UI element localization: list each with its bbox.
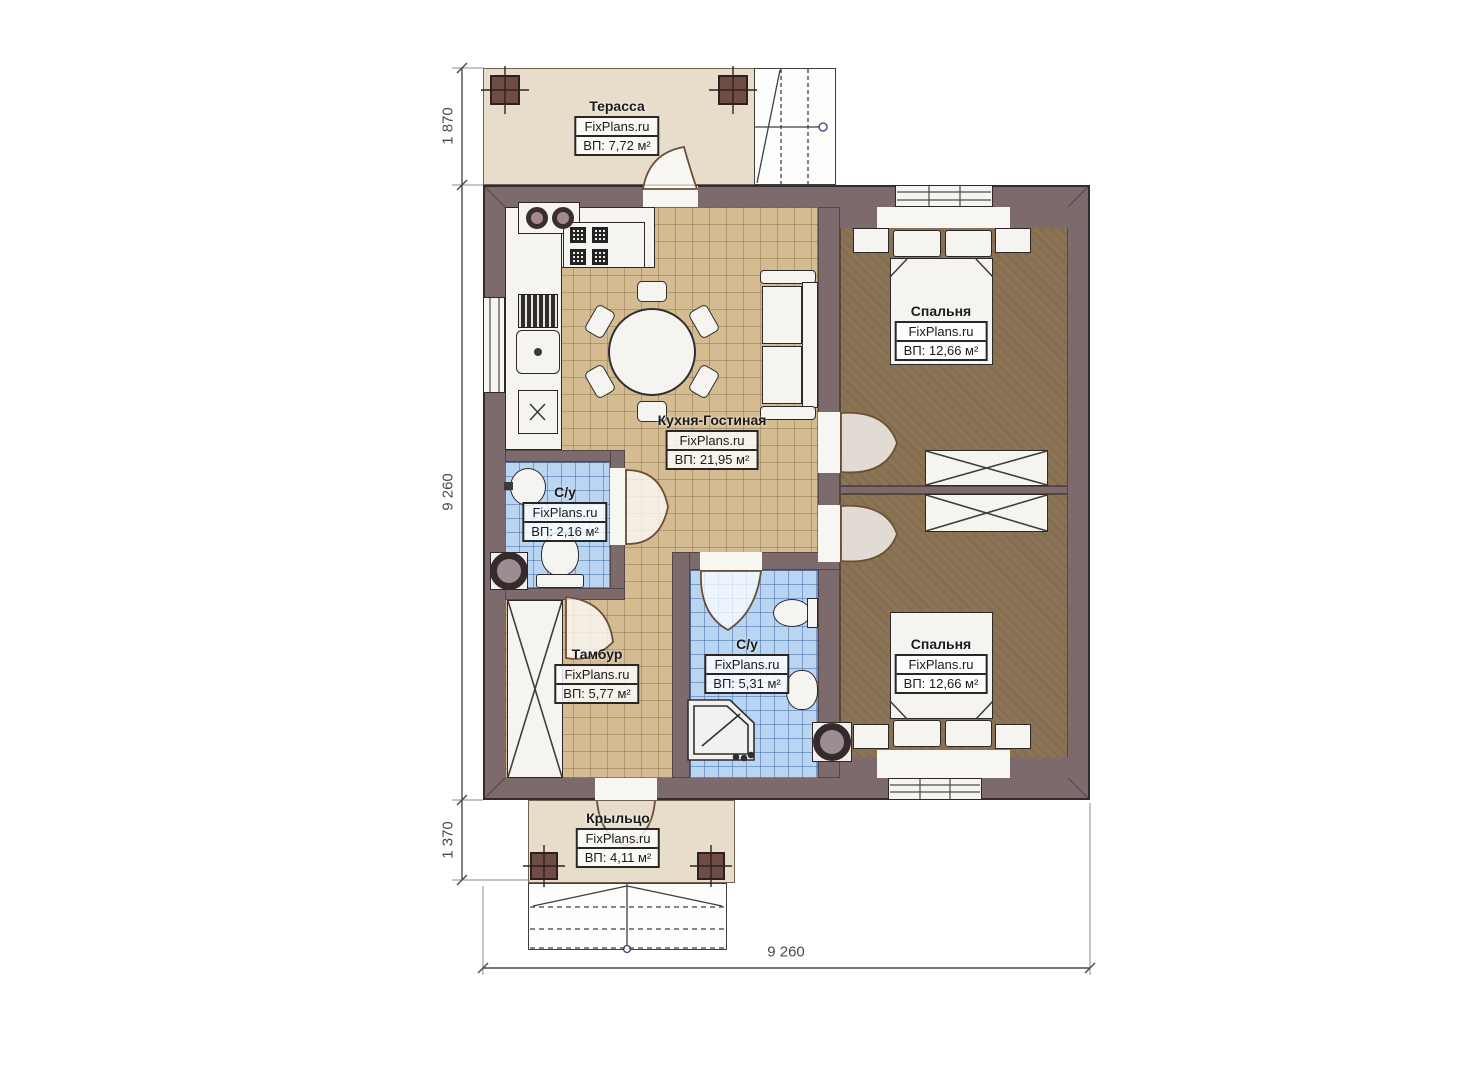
room-name: Спальня [911, 636, 971, 652]
room-info-box: FixPlans.ru ВП: 5,77 м² [554, 664, 639, 704]
room-name: Кухня-Гостиная [658, 412, 767, 428]
room-name: Тамбур [572, 646, 623, 662]
bathroom-small-toilet-tank [536, 574, 584, 588]
bathroom-big-toilet-bowl [773, 599, 811, 627]
nightstand [995, 228, 1031, 253]
exterior-stairs-top [754, 68, 836, 185]
sofa-armrest-bottom [760, 406, 816, 420]
room-info-box: FixPlans.ru ВП: 5,31 м² [704, 654, 789, 694]
nightstand [995, 724, 1031, 749]
floor-plan-canvas: Терасса FixPlans.ru ВП: 7,72 м² Кухня-Го… [0, 0, 1473, 1080]
sofa-back [802, 282, 818, 408]
terrace-post-right [718, 75, 748, 105]
room-label-kitchen-living: Кухня-Гостиная FixPlans.ru ВП: 21,95 м² [658, 412, 767, 470]
room-area: ВП: 2,16 м² [524, 523, 605, 540]
room-info-box: FixPlans.ru ВП: 21,95 м² [666, 430, 759, 470]
bathroom-big-toilet-tank [807, 598, 818, 628]
bed-pillow [945, 720, 992, 747]
bathroom-small-door-gap [610, 468, 625, 545]
bed-pillow [893, 230, 941, 257]
wall-pilaster-top-left [840, 207, 877, 228]
wall-between-bedrooms [840, 486, 1068, 494]
room-name: С/у [554, 484, 576, 500]
nightstand [853, 228, 889, 253]
porch-stairs [528, 883, 727, 950]
floor-drain [490, 552, 528, 590]
stove-burner-icon [526, 207, 548, 229]
wardrobe-bedroom-bottom [925, 494, 1048, 532]
room-label-bathroom-small: С/у FixPlans.ru ВП: 2,16 м² [522, 484, 607, 542]
watermark: FixPlans.ru [897, 323, 986, 342]
room-name: С/у [736, 636, 758, 652]
terrace-post-left [490, 75, 520, 105]
room-name: Спальня [911, 303, 971, 319]
room-info-box: FixPlans.ru ВП: 4,11 м² [576, 828, 660, 868]
chair [637, 281, 667, 302]
porch-post-left [530, 852, 558, 880]
stove-burner-icon [552, 207, 574, 229]
bedroom-top-door-gap [818, 412, 840, 473]
room-area: ВП: 4,11 м² [578, 849, 658, 866]
room-area: ВП: 12,66 м² [897, 675, 986, 692]
room-area: ВП: 5,77 м² [556, 685, 637, 702]
room-info-box: FixPlans.ru ВП: 12,66 м² [895, 321, 988, 361]
dining-table [608, 308, 696, 396]
room-area: ВП: 21,95 м² [668, 451, 757, 468]
bathroom-big-wall-left [672, 552, 690, 778]
bed-pillow [893, 720, 941, 747]
bathroom-big-sink [786, 670, 818, 710]
terrace-door-gap [643, 186, 698, 207]
wall-kitchen-bedrooms [818, 207, 840, 778]
room-area: ВП: 5,31 м² [706, 675, 787, 692]
watermark: FixPlans.ru [576, 118, 657, 137]
wall-pilaster-bottom-right [1010, 757, 1068, 778]
room-area: ВП: 7,72 м² [576, 137, 657, 154]
entrance-door-gap [595, 778, 657, 800]
wall-pilaster-top-right [1010, 207, 1068, 228]
cooktop-burner-icon [570, 249, 586, 265]
room-info-box: FixPlans.ru ВП: 12,66 м² [895, 654, 988, 694]
cooktop-burner-icon [570, 227, 586, 243]
cabinet-x [518, 390, 558, 434]
wardrobe-bedroom-top [925, 450, 1048, 486]
dimension-bottom-left: 1 370 [440, 821, 457, 859]
window-left-wall [483, 297, 505, 393]
room-name: Терасса [589, 98, 645, 114]
watermark: FixPlans.ru [578, 830, 658, 849]
dimension-left: 9 260 [440, 473, 457, 511]
watermark: FixPlans.ru [668, 432, 757, 451]
bathroom-small-wall-top [505, 450, 625, 462]
cooktop-burner-icon [592, 249, 608, 265]
watermark: FixPlans.ru [556, 666, 637, 685]
bathroom-big-door-gap [700, 552, 762, 570]
dimension-bottom: 9 260 [767, 944, 805, 961]
nightstand [853, 724, 889, 749]
watermark: FixPlans.ru [706, 656, 787, 675]
room-label-bedroom-top: Спальня FixPlans.ru ВП: 12,66 м² [895, 303, 988, 361]
kitchen-sink-drain-dot [534, 348, 542, 356]
watermark: FixPlans.ru [897, 656, 986, 675]
dimension-top-left: 1 870 [440, 107, 457, 145]
room-label-porch: Крыльцо FixPlans.ru ВП: 4,11 м² [576, 810, 660, 868]
window-bedroom-bottom [888, 778, 982, 800]
sofa-cushion [762, 346, 802, 404]
room-info-box: FixPlans.ru ВП: 2,16 м² [522, 502, 607, 542]
room-info-box: FixPlans.ru ВП: 7,72 м² [574, 116, 659, 156]
window-bedroom-top [895, 185, 993, 207]
bedroom-bottom-window-niche [877, 750, 1010, 778]
cooktop-burner-icon [592, 227, 608, 243]
watermark: FixPlans.ru [524, 504, 605, 523]
bedroom-top-window-niche [877, 207, 1010, 228]
sink-drainer [518, 294, 558, 328]
room-label-bathroom-big: С/у FixPlans.ru ВП: 5,31 м² [704, 636, 789, 694]
drain-ring-icon [490, 552, 528, 590]
bathroom-small-faucet [504, 482, 513, 490]
porch-post-right [697, 852, 725, 880]
floor-drain [812, 722, 852, 762]
room-area: ВП: 12,66 м² [897, 342, 986, 359]
room-name: Крыльцо [586, 810, 650, 826]
room-label-vestibule: Тамбур FixPlans.ru ВП: 5,77 м² [554, 646, 639, 704]
sofa-cushion [762, 286, 802, 344]
bed-pillow [945, 230, 992, 257]
room-label-bedroom-bottom: Спальня FixPlans.ru ВП: 12,66 м² [895, 636, 988, 694]
bedroom-bottom-door-gap [818, 505, 840, 562]
drain-ring-icon [813, 723, 851, 761]
room-label-terrace: Терасса FixPlans.ru ВП: 7,72 м² [574, 98, 659, 156]
